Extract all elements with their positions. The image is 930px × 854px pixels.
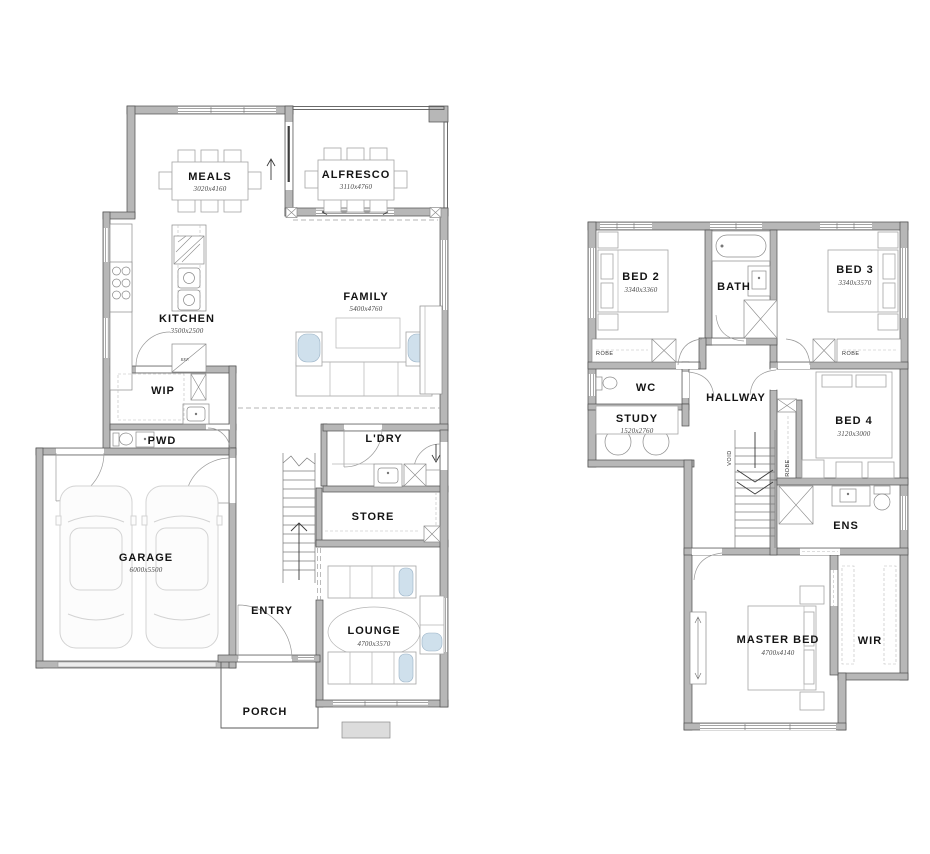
room-label-hallway: HALLWAY (706, 392, 766, 404)
room-label-alfresco: ALFRESCO (322, 169, 391, 181)
tv-unit (420, 306, 442, 394)
north-arrow-icon (267, 159, 275, 180)
room-label-wir: WIR (858, 635, 882, 647)
stair-down-arrow-icon (737, 432, 773, 494)
room-label-pwd: PWD (148, 435, 177, 447)
ldry-fixtures (332, 444, 440, 487)
coffee-table (336, 318, 400, 348)
room-dims-study: 1520x2760 (621, 427, 654, 435)
robe-label-bed3: ROBE (842, 351, 860, 357)
room-label-bed2: BED 2 (622, 271, 659, 283)
ens-fixtures (779, 486, 890, 524)
room-label-entry: ENTRY (251, 605, 293, 617)
room-dims-family: 5400x4760 (350, 305, 383, 313)
room-dims-bed4: 3120x3000 (837, 430, 871, 438)
room-label-garage: GARAGE (119, 552, 173, 564)
stair-up-arrow-icon (291, 523, 307, 580)
room-label-bed4: BED 4 (835, 415, 872, 427)
external-door-arrow-icon (432, 444, 440, 462)
room-label-kitchen: KITCHEN (159, 313, 215, 325)
sofa-chaise-cushion (298, 334, 320, 362)
room-label-porch: PORCH (243, 706, 288, 718)
room-label-wc: WC (636, 382, 656, 394)
upper-floor-plan: BED 2 3340x3360 BATH BED 3 3340x3570 WC … (588, 222, 908, 730)
void-label: VOID (727, 450, 733, 465)
robe-label-bed2: ROBE (596, 351, 614, 357)
fridge-label: REF. (180, 357, 190, 362)
room-dims-alfresco: 3110x4760 (339, 183, 373, 191)
room-dims-lounge: 4700x3570 (358, 640, 391, 648)
family-furniture (296, 306, 442, 396)
room-label-lounge: LOUNGE (347, 625, 400, 637)
room-label-ens: ENS (833, 520, 859, 532)
room-label-master: MASTER BED (737, 634, 820, 646)
wc-fixtures (596, 377, 617, 390)
room-dims-garage: 6000x5500 (130, 566, 163, 574)
room-label-family: FAMILY (343, 291, 388, 303)
porch-step (342, 722, 390, 738)
room-dims-kitchen: 3500x2500 (170, 327, 204, 335)
master-furniture (690, 586, 824, 710)
room-label-ldry: L'DRY (365, 433, 402, 445)
room-label-study: STUDY (616, 413, 658, 425)
room-label-store: STORE (352, 511, 395, 523)
room-dims-master: 4700x4140 (762, 649, 795, 657)
robe-label-bed4: ROBE (785, 459, 791, 477)
floorplan-canvas: MEALS 3020x4160 ALFRESCO 3110x4760 KITCH… (0, 0, 930, 854)
room-label-bed3: BED 3 (836, 264, 873, 276)
room-dims-bed3: 3340x3570 (838, 279, 872, 287)
room-label-meals: MEALS (188, 171, 232, 183)
room-label-bath: BATH (717, 281, 751, 293)
room-label-wip: WIP (151, 385, 175, 397)
car (56, 486, 136, 648)
floorplan-svg: MEALS 3020x4160 ALFRESCO 3110x4760 KITCH… (0, 0, 930, 854)
wc-toilet (603, 377, 617, 389)
wir-shelving (842, 566, 896, 664)
room-dims-bed2: 3340x3360 (624, 286, 658, 294)
ens-toilet (874, 494, 890, 510)
pwd-toilet (120, 433, 133, 445)
ground-floor-stairs (283, 453, 315, 583)
room-dims-meals: 3020x4160 (193, 185, 227, 193)
ground-floor-plan: MEALS 3020x4160 ALFRESCO 3110x4760 KITCH… (36, 106, 448, 738)
upper-floor-stairs (735, 430, 775, 548)
